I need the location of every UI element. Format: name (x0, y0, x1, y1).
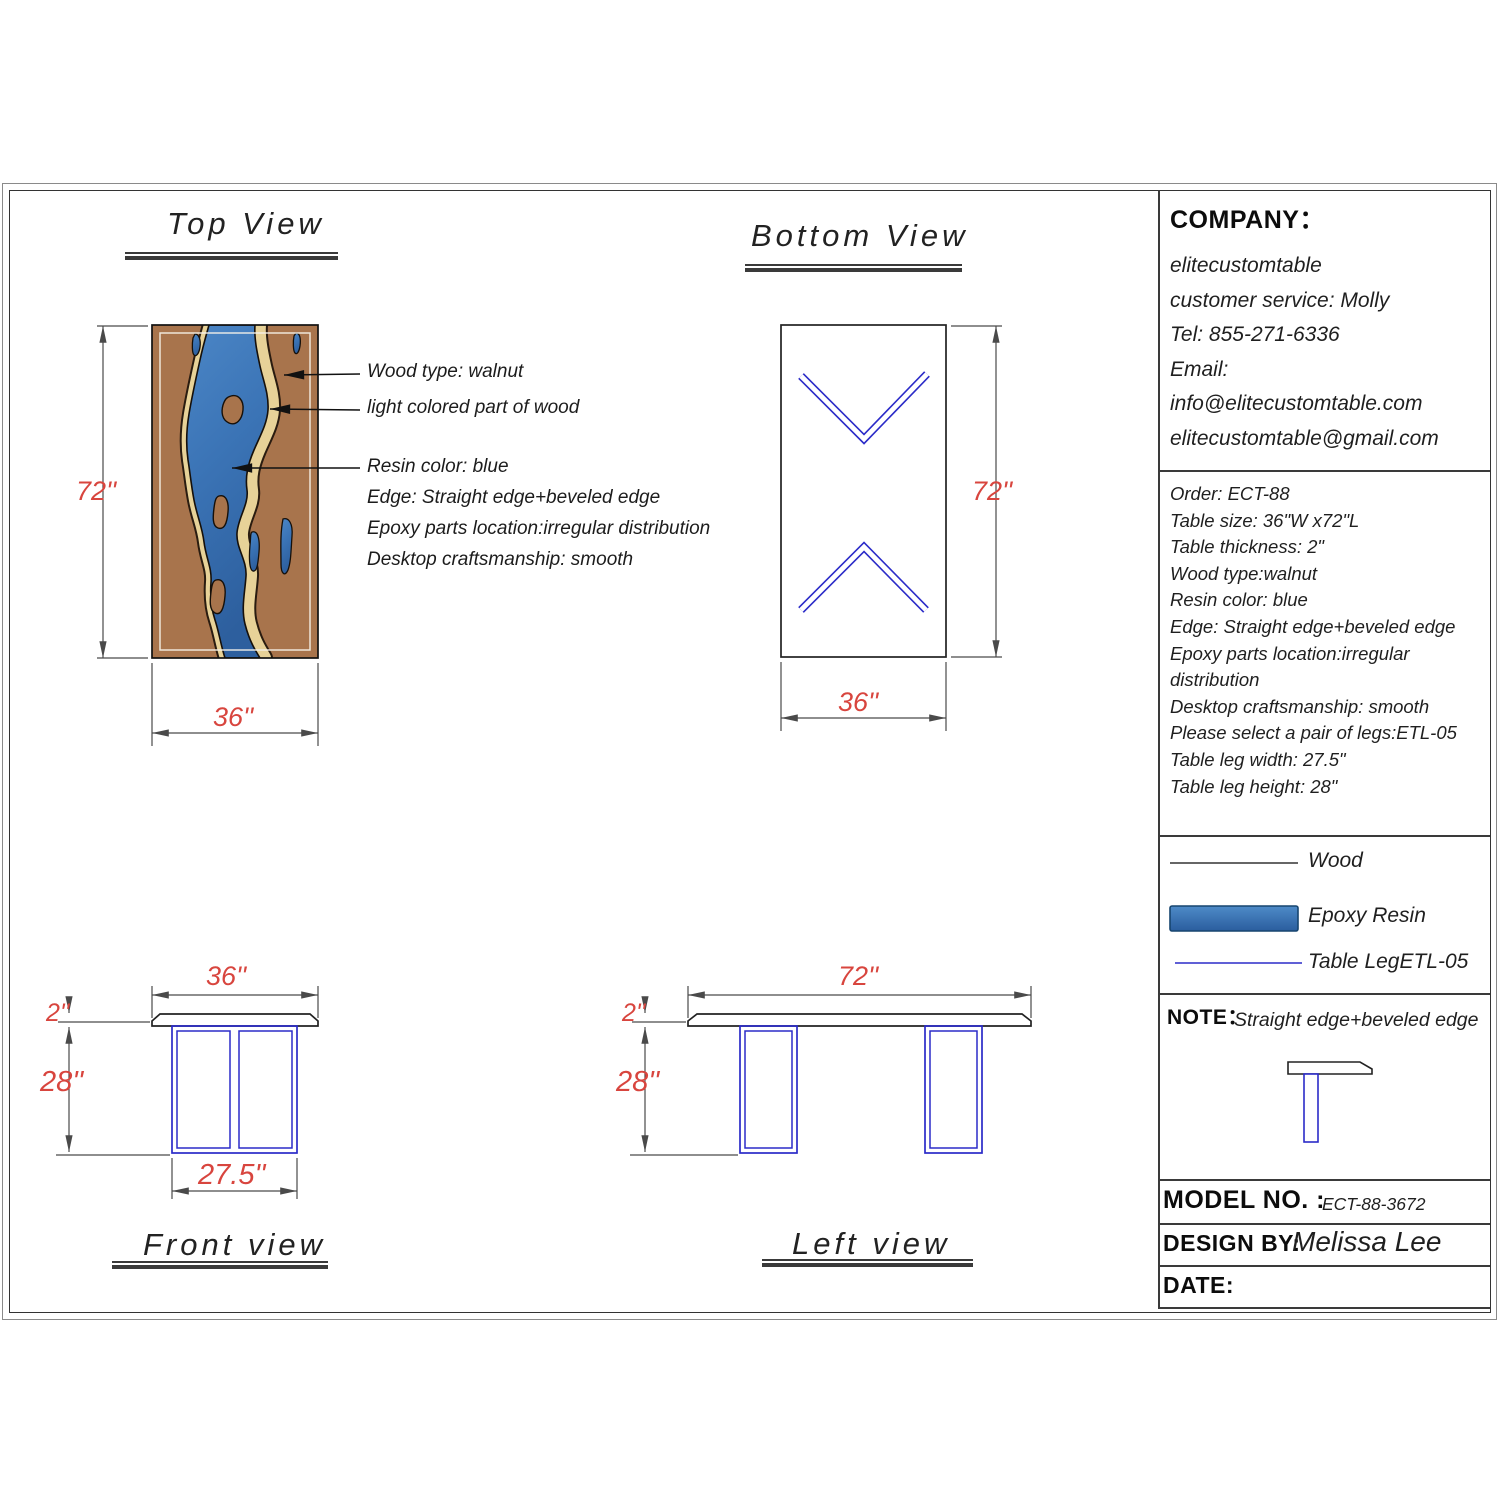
order-leg-height: Table leg height: 28" (1170, 774, 1457, 801)
annotation-edge: Edge: Straight edge+beveled edge (367, 487, 660, 509)
dim-front-leg-width: 27.5'' (198, 1159, 266, 1192)
dim-bottom-view-width: 36'' (838, 687, 878, 718)
left-view-underline-thin (762, 1259, 973, 1261)
dim-top-view-width: 36'' (213, 702, 253, 733)
dim-left-leg-height: 28'' (616, 1066, 659, 1099)
model-no-label: MODEL NO. : (1163, 1186, 1325, 1215)
dim-front-leg-height: 28'' (40, 1066, 83, 1099)
design-by-value: Melissa Lee (1292, 1226, 1441, 1258)
panel-divider-order (1158, 835, 1490, 837)
dim-front-thickness: 2'' (46, 999, 69, 1028)
order-craftsmanship: Desktop craftsmanship: smooth (1170, 694, 1457, 721)
order-epoxy-location-2: distribution (1170, 667, 1457, 694)
note-text: Straight edge+beveled edge (1234, 1009, 1479, 1031)
legend-table-leg-label: Table LegETL-05 (1308, 950, 1468, 974)
panel-divider-design (1158, 1265, 1490, 1267)
order-details: Order: ECT-88 Table size: 36"W x72"L Tab… (1170, 481, 1457, 800)
bottom-view-underline-thick (745, 268, 962, 272)
top-view-underline-thick (125, 256, 338, 260)
left-view-underline-thick (762, 1263, 973, 1267)
order-number: Order: ECT-88 (1170, 481, 1457, 508)
company-email-1: info@elitecustomtable.com (1170, 387, 1439, 422)
annotation-resin-color: Resin color: blue (367, 456, 509, 478)
dim-front-width: 36'' (206, 961, 246, 992)
panel-divider-vertical (1158, 190, 1160, 1307)
model-no-value: ECT-88-3672 (1322, 1194, 1425, 1214)
order-resin-color: Resin color: blue (1170, 587, 1457, 614)
annotation-epoxy-location: Epoxy parts location:irregular distribut… (367, 518, 710, 540)
top-view-title: Top View (167, 206, 325, 242)
legend-wood-label: Wood (1308, 849, 1363, 873)
dim-bottom-view-height: 72'' (972, 476, 1012, 507)
company-customer-service: customer service: Molly (1170, 284, 1439, 319)
annotation-craftsmanship: Desktop craftsmanship: smooth (367, 549, 633, 571)
order-table-size: Table size: 36"W x72"L (1170, 508, 1457, 535)
design-by-label: DESIGN BY: (1163, 1230, 1300, 1256)
order-wood-type: Wood type:walnut (1170, 561, 1457, 588)
panel-divider-note (1158, 1179, 1490, 1181)
panel-divider-company (1158, 470, 1490, 472)
dim-left-thickness: 2'' (622, 999, 645, 1028)
dim-top-view-height: 72'' (76, 476, 116, 507)
company-email-2: elitecustomtable@gmail.com (1170, 422, 1439, 457)
front-view-underline-thick (112, 1265, 328, 1269)
company-tel: Tel: 855-271-6336 (1170, 318, 1439, 353)
annotation-wood-type: Wood type: walnut (367, 361, 523, 383)
order-leg-width: Table leg width: 27.5" (1170, 747, 1457, 774)
panel-divider-model (1158, 1223, 1490, 1225)
order-epoxy-location: Epoxy parts location:irregular (1170, 641, 1457, 668)
company-info: elitecustomtable customer service: Molly… (1170, 249, 1439, 456)
bottom-view-underline-thin (745, 264, 962, 266)
annotation-light-wood: light colored part of wood (367, 397, 579, 419)
drawing-sheet: { "titles": { "top_view": "Top View", "b… (0, 0, 1500, 1500)
company-email-label: Email: (1170, 353, 1439, 388)
top-view-underline-thin (125, 252, 338, 254)
company-name: elitecustomtable (1170, 249, 1439, 284)
dim-left-width: 72'' (838, 961, 878, 992)
left-view-title: Left view (792, 1226, 950, 1262)
order-edge: Edge: Straight edge+beveled edge (1170, 614, 1457, 641)
bottom-view-title: Bottom View (751, 218, 968, 254)
date-label: DATE: (1163, 1272, 1234, 1298)
company-heading: COMPANY： (1170, 206, 1325, 235)
order-legs: Please select a pair of legs:ETL-05 (1170, 720, 1457, 747)
panel-divider-date (1158, 1307, 1490, 1309)
panel-divider-legend (1158, 993, 1490, 995)
front-view-title: Front view (143, 1227, 326, 1263)
legend-epoxy-label: Epoxy Resin (1308, 904, 1426, 928)
front-view-underline-thin (112, 1261, 328, 1263)
order-table-thickness: Table thickness: 2" (1170, 534, 1457, 561)
